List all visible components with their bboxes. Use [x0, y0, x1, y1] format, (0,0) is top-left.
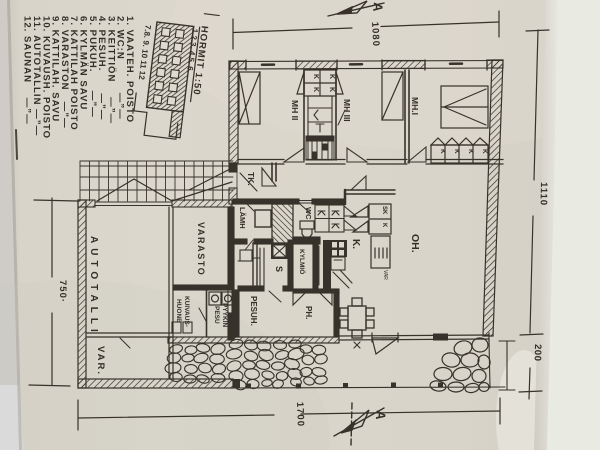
svg-text:PH.: PH.	[304, 306, 313, 319]
svg-text:WC: WC	[304, 207, 313, 220]
svg-text:VAR: VAR	[382, 270, 388, 280]
svg-text:HUONE: HUONE	[175, 299, 182, 323]
svg-text:PESU: PESU	[213, 306, 220, 324]
svg-text:K: K	[453, 149, 460, 154]
svg-text:K: K	[481, 149, 488, 154]
svg-text:K: K	[467, 149, 474, 154]
svg-text:K: K	[328, 74, 335, 79]
svg-text:MH.I: MH.I	[410, 97, 420, 115]
svg-text:1110: 1110	[538, 182, 549, 206]
svg-text:K: K	[381, 223, 387, 228]
svg-text:1080: 1080	[369, 22, 381, 48]
svg-text:K: K	[328, 87, 335, 92]
svg-text:S: S	[274, 266, 284, 272]
svg-text:MH II: MH II	[290, 100, 300, 120]
svg-text:KUIVAUS-: KUIVAUS-	[183, 296, 190, 327]
svg-text:VAR.: VAR.	[95, 346, 106, 376]
svg-text:K.: K.	[350, 239, 361, 249]
svg-text:AUTOTALLI: AUTOTALLI	[88, 236, 99, 337]
svg-text:SK: SK	[381, 206, 387, 215]
svg-text:200: 200	[532, 344, 543, 362]
svg-text:PYYKIN: PYYKIN	[221, 303, 228, 328]
svg-text:KYLMIÖ: KYLMIÖ	[298, 249, 307, 274]
svg-text:TK.: TK.	[246, 172, 256, 186]
svg-text:1700: 1700	[294, 402, 306, 428]
svg-text:K: K	[312, 74, 319, 79]
svg-text:K: K	[312, 87, 319, 92]
svg-text:K: K	[439, 149, 446, 154]
svg-text:PESUH.: PESUH.	[249, 296, 258, 326]
svg-text:MH III: MH III	[342, 99, 352, 122]
svg-text:12. SAUNAN —”—: 12. SAUNAN —”—	[22, 16, 33, 125]
svg-text:OH.: OH.	[409, 234, 421, 253]
svg-text:LÄMH: LÄMH	[238, 207, 247, 229]
svg-text:750·: 750·	[57, 280, 68, 303]
svg-text:VARASTO: VARASTO	[196, 222, 206, 276]
